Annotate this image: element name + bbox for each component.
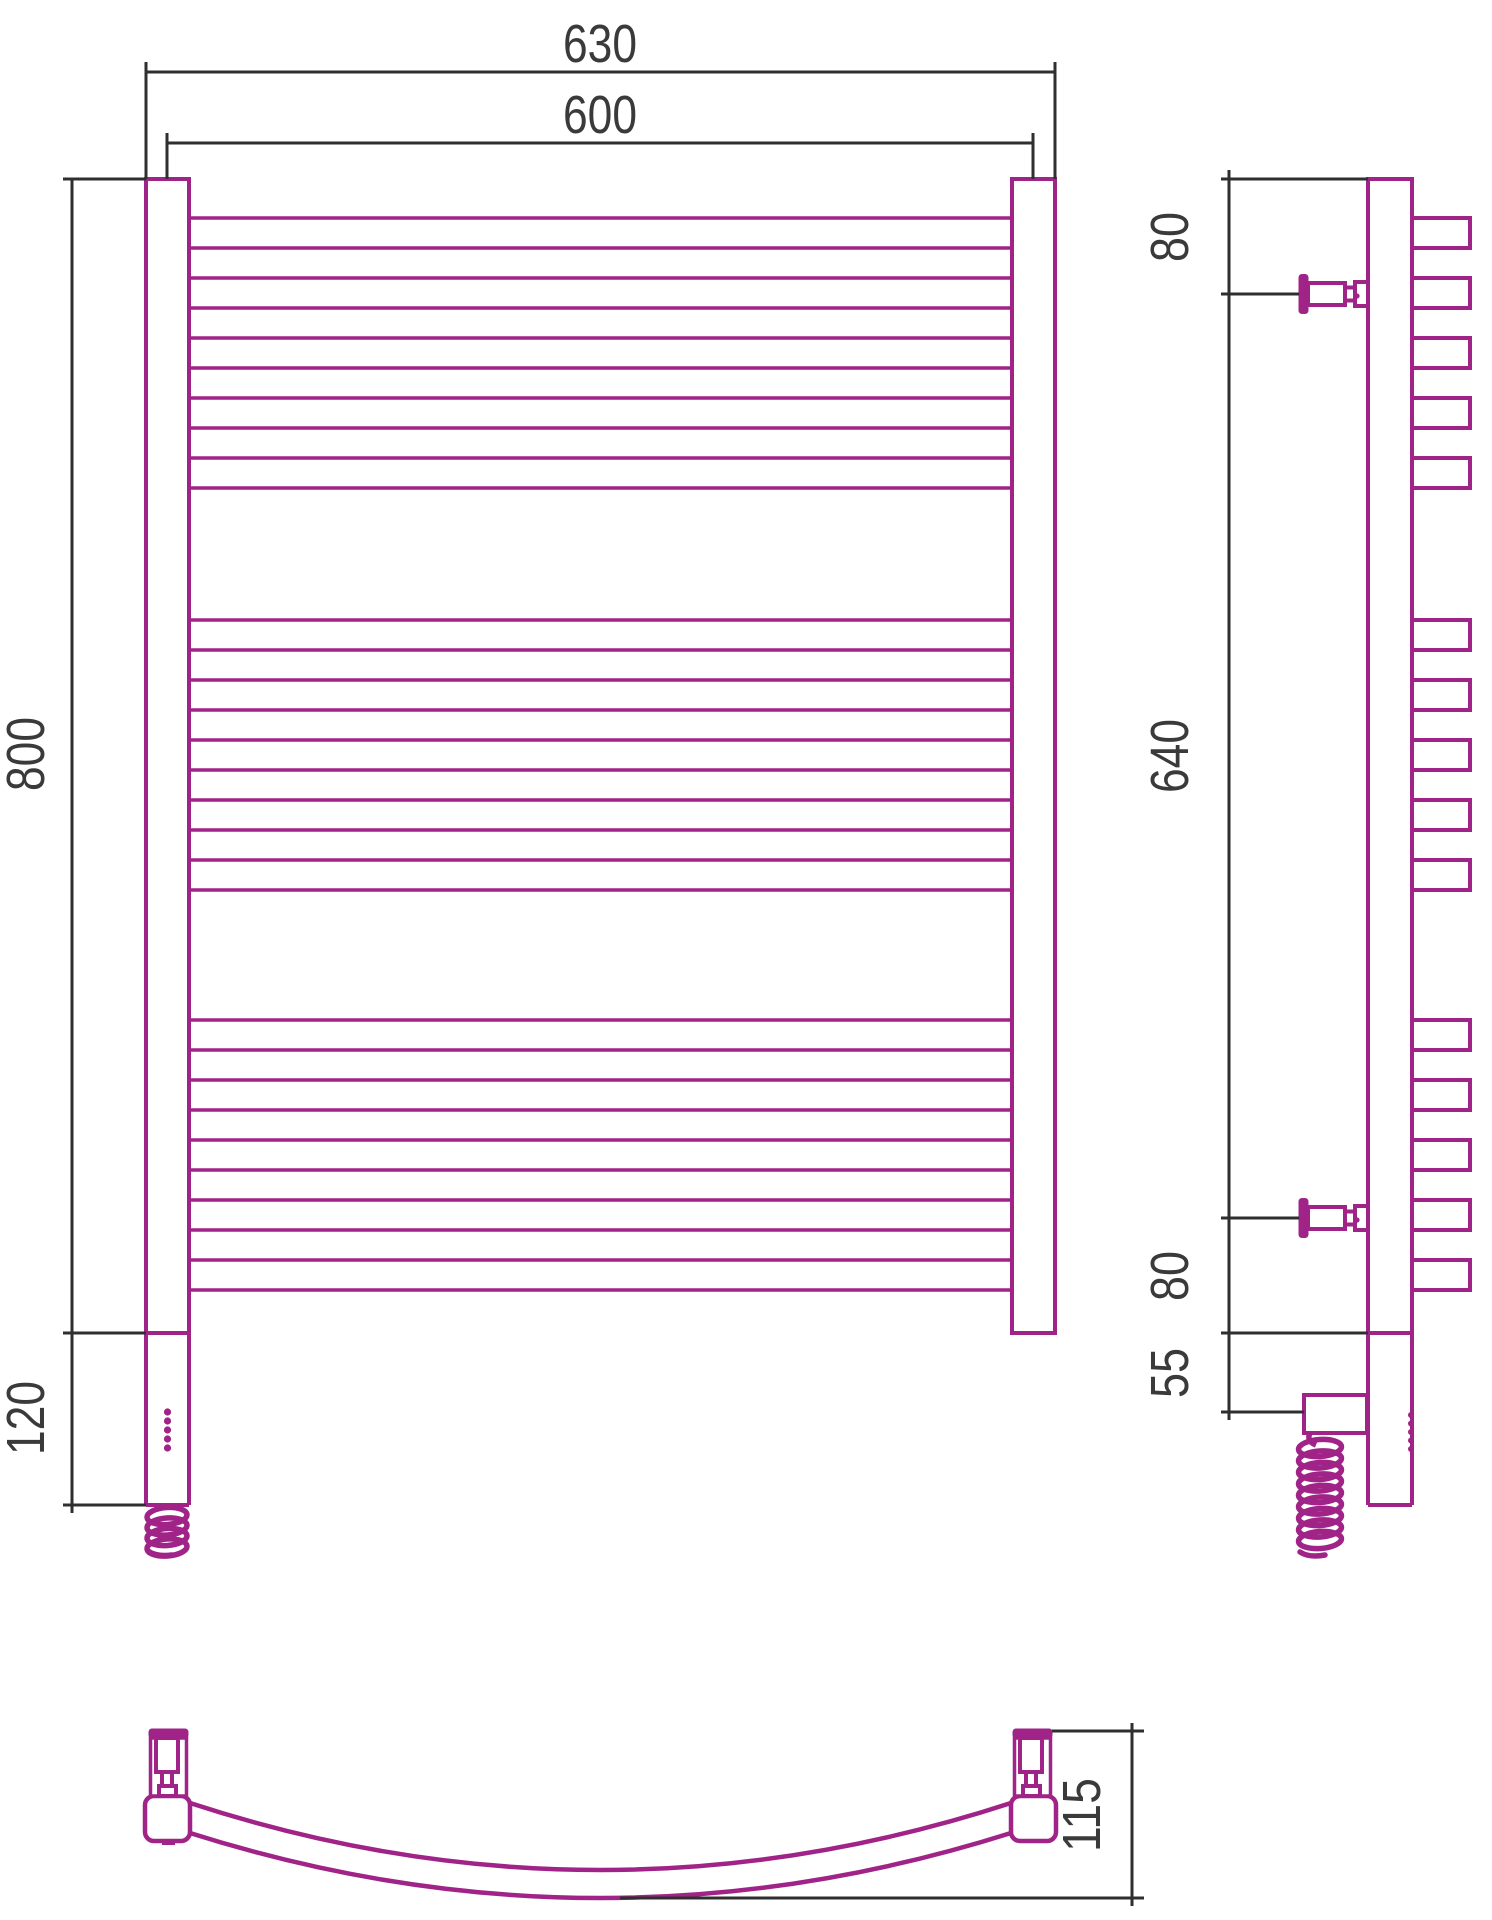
rail-end-blocks — [145, 1796, 1056, 1845]
dim-label-bracket-to-bottom: 80 — [1140, 1251, 1200, 1301]
towel-rail-technical-drawing: 630 600 800 120 80 640 80 55 115 — [0, 0, 1492, 1920]
wall-bracket-plan — [149, 1729, 188, 1796]
towel-bar — [189, 1080, 1012, 1110]
dim-label-body-height: 800 — [0, 717, 56, 791]
front-view: 630 600 800 120 — [0, 14, 1055, 1557]
towel-bar — [189, 338, 1012, 368]
towel-bar — [189, 620, 1012, 650]
towel-bar-ends-side — [1412, 218, 1470, 1290]
wall-bracket — [1299, 275, 1368, 314]
dim-label-overall-width: 630 — [563, 14, 637, 74]
coiled-power-cable-side — [1298, 1433, 1342, 1556]
towel-bar — [189, 1020, 1012, 1050]
indicator-dots — [164, 1408, 171, 1451]
towel-bar — [189, 740, 1012, 770]
towel-bar — [189, 278, 1012, 308]
bottom-view: 115 — [145, 1723, 1144, 1906]
dim-label-depth: 115 — [1052, 1778, 1112, 1852]
dim-label-bracket-span: 640 — [1140, 719, 1200, 793]
drawing-sheet: 630 600 800 120 80 640 80 55 115 — [0, 0, 1492, 1920]
towel-bar — [189, 860, 1012, 890]
wall-brackets — [1299, 275, 1368, 1238]
towel-bar — [189, 1140, 1012, 1170]
towel-bar — [189, 680, 1012, 710]
towel-bar — [189, 1200, 1012, 1230]
side-view: 80 640 80 55 — [1140, 170, 1470, 1556]
wall-brackets-plan — [149, 1729, 1052, 1796]
dim-label-axis-width: 600 — [563, 85, 637, 145]
towel-bar — [189, 800, 1012, 830]
side-dimension-lines — [1221, 170, 1368, 1420]
towel-bars-front — [189, 218, 1012, 1290]
cable-terminal-box — [1304, 1395, 1367, 1433]
wall-bracket-plan — [1013, 1729, 1052, 1796]
towel-bar — [189, 398, 1012, 428]
towel-bar — [189, 218, 1012, 248]
vertical-rails-front — [146, 179, 1055, 1333]
curved-tube-profile — [190, 1803, 1011, 1898]
vertical-rail-side — [1368, 179, 1414, 1505]
dim-label-heater-extension: 120 — [0, 1381, 56, 1455]
towel-bar — [189, 458, 1012, 488]
towel-bar — [189, 1260, 1012, 1290]
coiled-power-cable-front — [146, 1506, 187, 1557]
heating-element-housing — [146, 1333, 189, 1505]
dim-label-bottom-to-box: 55 — [1140, 1348, 1200, 1398]
wall-bracket — [1299, 1199, 1368, 1238]
dim-label-top-to-bracket: 80 — [1140, 212, 1200, 262]
